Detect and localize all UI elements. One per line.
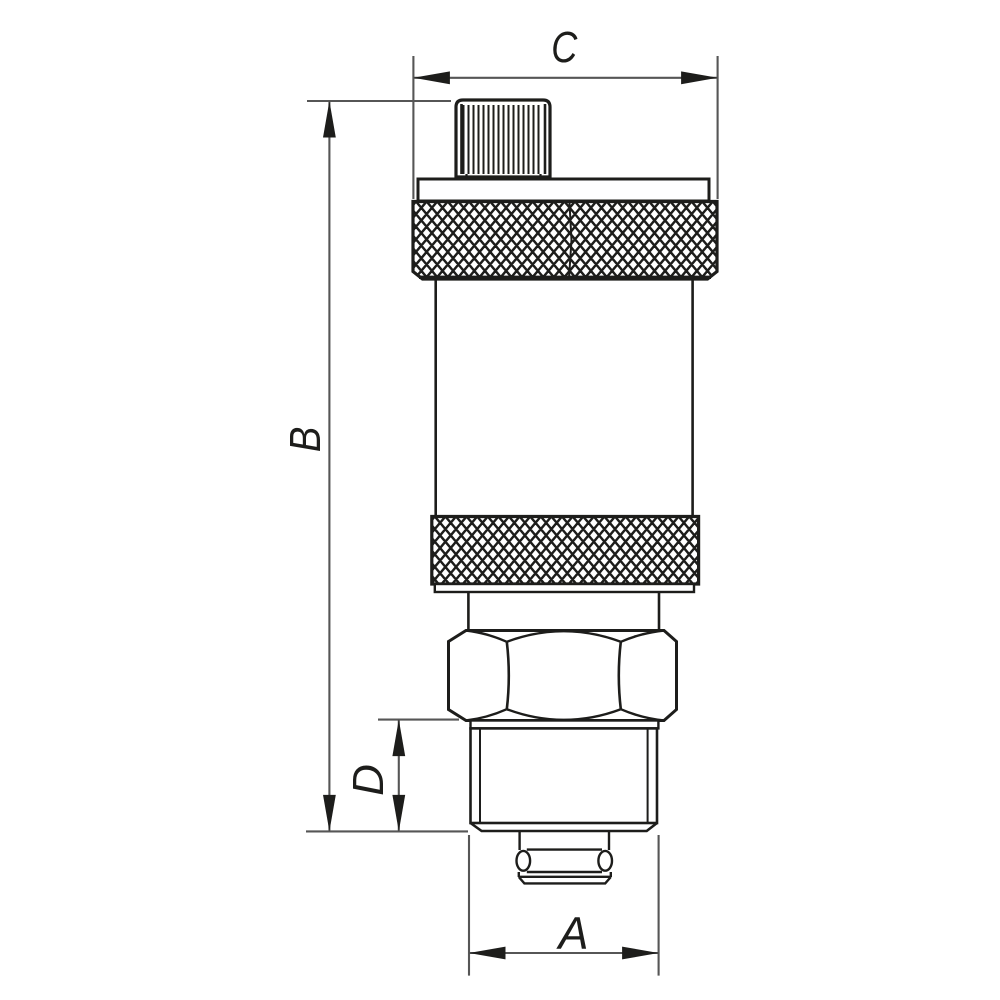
svg-text:C: C (551, 22, 578, 71)
svg-text:B: B (281, 427, 330, 453)
svg-text:A: A (555, 908, 588, 959)
svg-text:D: D (344, 764, 393, 796)
